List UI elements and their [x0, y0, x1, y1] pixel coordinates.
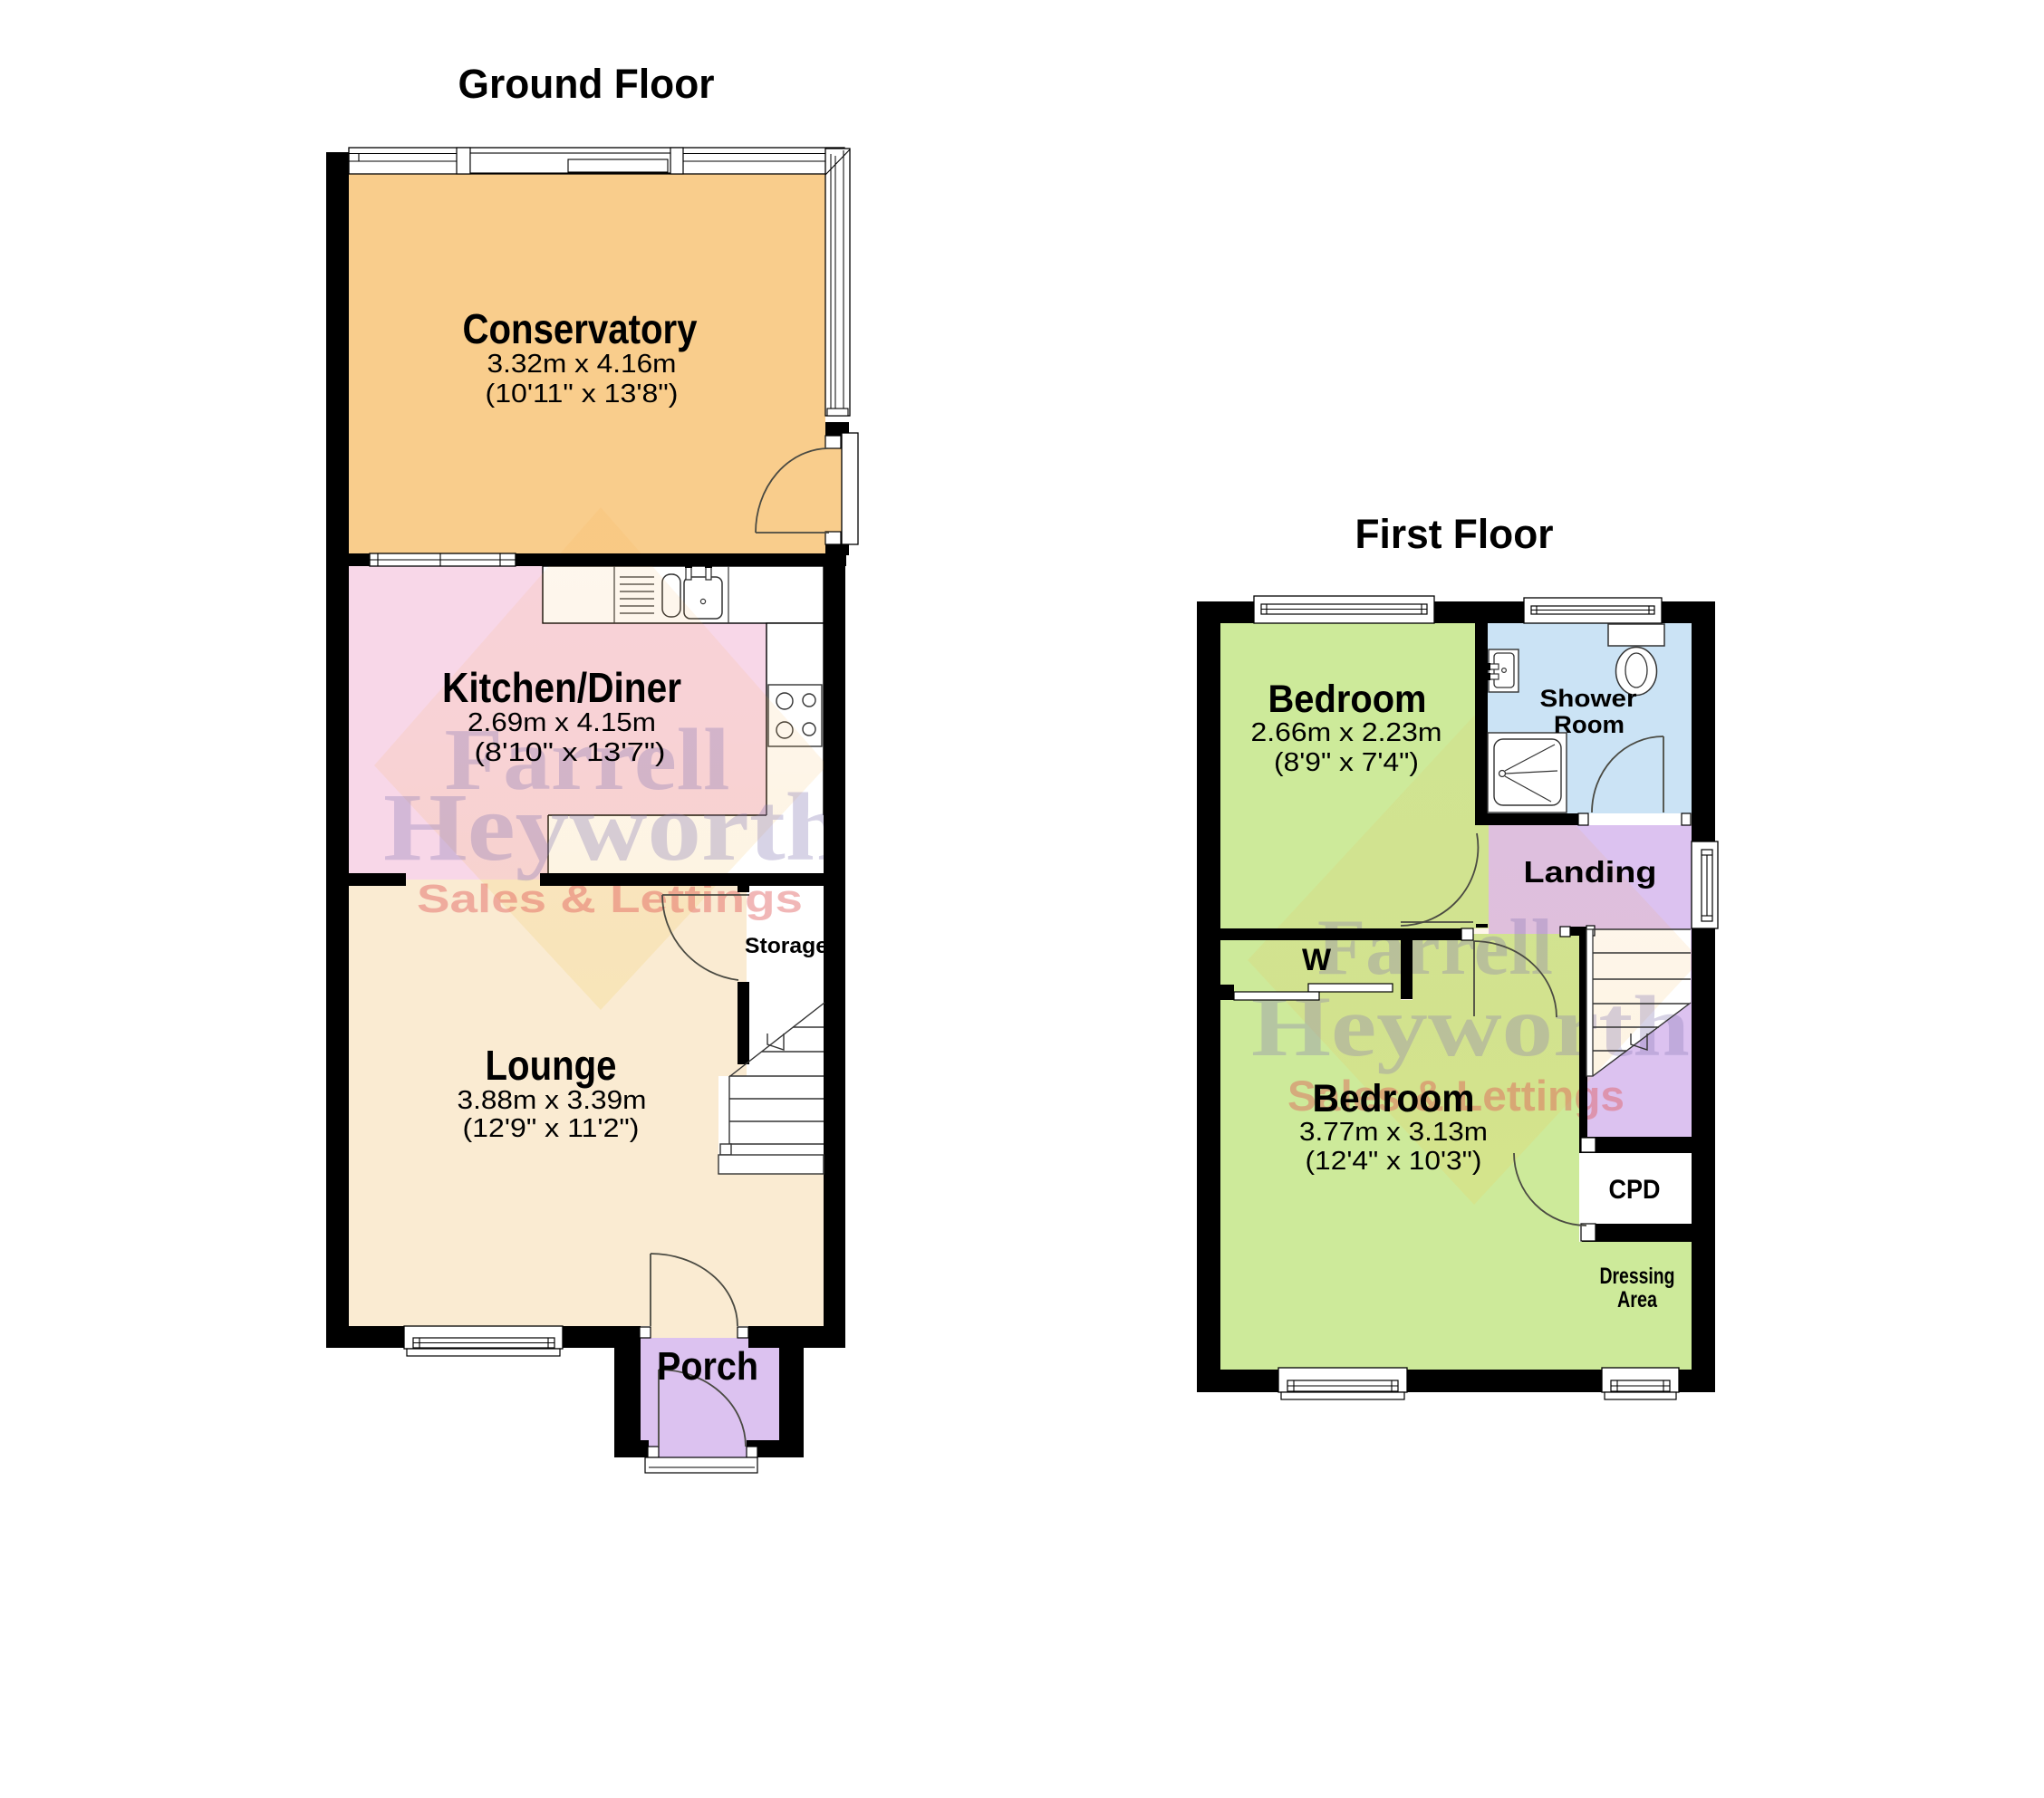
- svg-text:CPD: CPD: [1609, 1175, 1661, 1205]
- svg-text:(8'10" x 13'7"): (8'10" x 13'7"): [475, 738, 666, 767]
- svg-text:2.69m x 4.15m: 2.69m x 4.15m: [468, 708, 656, 737]
- svg-text:3.88m x 3.39m: 3.88m x 3.39m: [458, 1086, 647, 1115]
- svg-text:Heyworth: Heyworth: [383, 774, 845, 881]
- svg-text:Conservatory: Conservatory: [463, 305, 698, 352]
- svg-text:First Floor: First Floor: [1355, 511, 1554, 557]
- svg-text:(8'9" x 7'4"): (8'9" x 7'4"): [1274, 748, 1419, 777]
- svg-text:2.66m x 2.23m: 2.66m x 2.23m: [1251, 718, 1442, 747]
- svg-text:Area: Area: [1617, 1287, 1658, 1312]
- svg-text:Bedroom: Bedroom: [1313, 1077, 1475, 1120]
- svg-text:Kitchen/Diner: Kitchen/Diner: [442, 664, 681, 711]
- svg-text:Room: Room: [1554, 711, 1625, 738]
- svg-text:Lounge: Lounge: [486, 1042, 617, 1089]
- svg-text:Landing: Landing: [1524, 855, 1657, 889]
- svg-text:(12'4" x 10'3"): (12'4" x 10'3"): [1306, 1147, 1482, 1176]
- svg-text:Porch: Porch: [657, 1344, 758, 1389]
- svg-text:W: W: [1302, 943, 1332, 977]
- svg-text:Dressing: Dressing: [1600, 1264, 1675, 1289]
- svg-text:Bedroom: Bedroom: [1268, 678, 1427, 721]
- svg-text:Ground Floor: Ground Floor: [458, 61, 715, 107]
- svg-text:(12'9" x 11'2"): (12'9" x 11'2"): [463, 1114, 640, 1143]
- svg-text:3.77m x 3.13m: 3.77m x 3.13m: [1299, 1118, 1488, 1147]
- svg-text:(10'11" x 13'8"): (10'11" x 13'8"): [486, 380, 679, 409]
- svg-text:Storage: Storage: [745, 934, 828, 958]
- svg-text:Shower: Shower: [1540, 685, 1638, 712]
- svg-text:3.32m x 4.16m: 3.32m x 4.16m: [487, 350, 677, 379]
